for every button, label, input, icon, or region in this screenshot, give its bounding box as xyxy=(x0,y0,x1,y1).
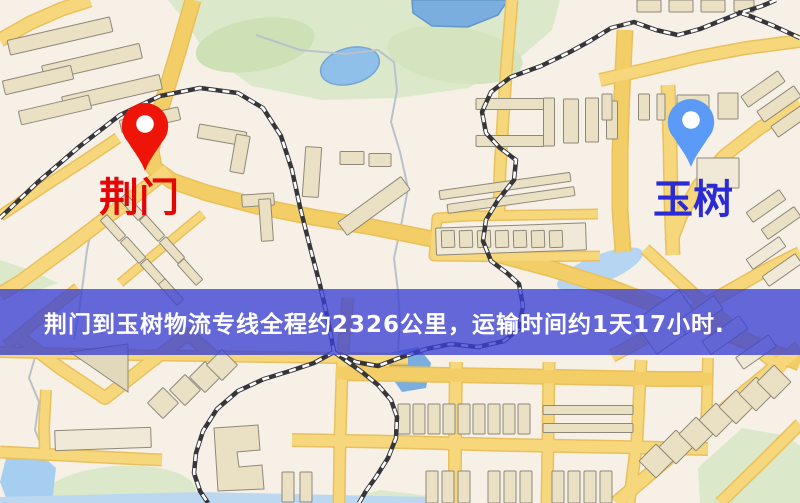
destination-pin-icon xyxy=(665,96,717,168)
origin-pin-icon xyxy=(119,100,171,172)
destination-label: 玉树 xyxy=(653,180,733,220)
map-image: 荆门 玉树 荆门到玉树物流专线全程约2326公里，运输时间约1天17小时. xyxy=(0,0,800,503)
map-canvas[interactable] xyxy=(0,0,800,503)
route-info-text: 荆门到玉树物流专线全程约2326公里，运输时间约1天17小时. xyxy=(44,305,725,339)
route-info-banner: 荆门到玉树物流专线全程约2326公里，运输时间约1天17小时. xyxy=(0,289,800,355)
origin-label: 荆门 xyxy=(99,178,179,218)
